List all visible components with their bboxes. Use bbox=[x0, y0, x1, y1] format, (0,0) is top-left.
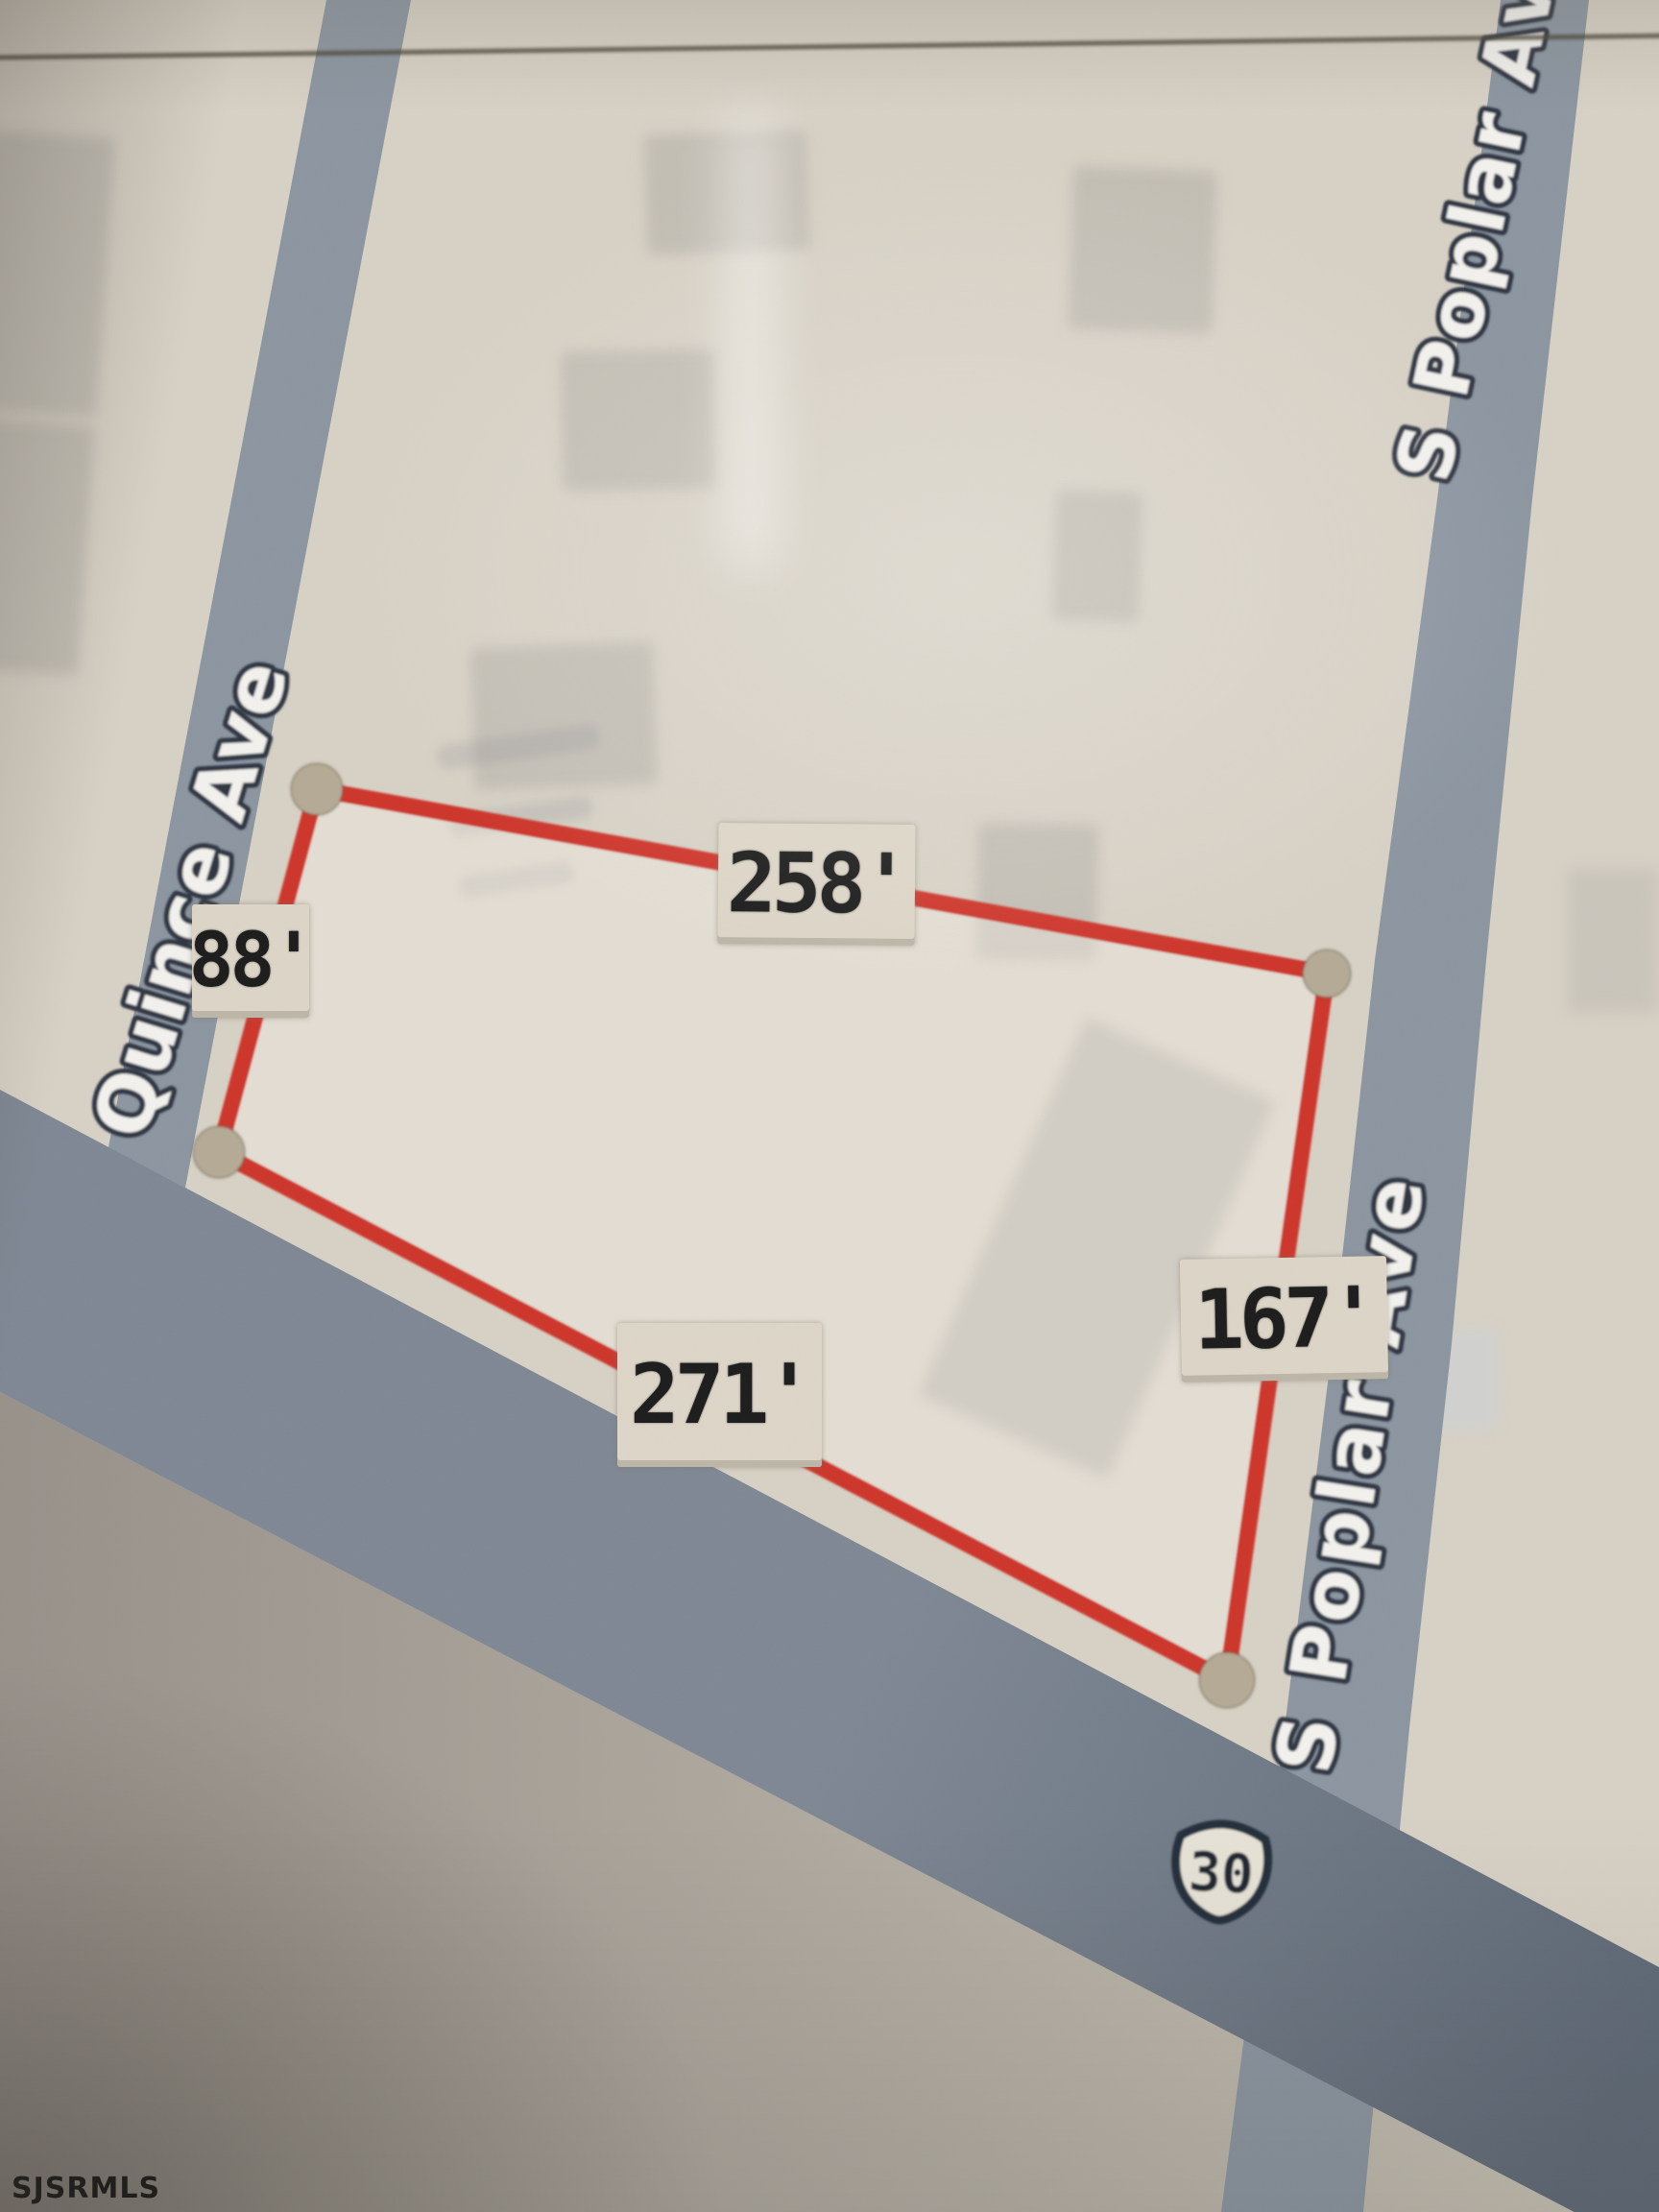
dimension-label-right: 167' bbox=[1180, 1256, 1388, 1382]
corner-dot bbox=[291, 763, 343, 815]
dimension-value: 88' bbox=[189, 918, 313, 1004]
dimension-label-left: 88' bbox=[192, 904, 309, 1018]
map-drawing: Quince Ave S Poplar Ave S Poplar Av 30 bbox=[0, 0, 1659, 2212]
corner-dot bbox=[1303, 950, 1351, 998]
dimension-value: 271' bbox=[630, 1347, 809, 1443]
plat-map-photo: Quince Ave S Poplar Ave S Poplar Av 30 8… bbox=[0, 0, 1659, 2212]
dimension-value: 258' bbox=[727, 835, 907, 933]
corner-dot bbox=[1199, 1652, 1255, 1708]
corner-dot bbox=[193, 1126, 245, 1178]
dimension-value: 167' bbox=[1193, 1269, 1375, 1368]
route-shield-number: 30 bbox=[1188, 1840, 1256, 1906]
dimension-label-bottom: 271' bbox=[617, 1323, 822, 1467]
mls-watermark: SJSRMLS bbox=[12, 2172, 160, 2205]
dimension-label-top: 258' bbox=[717, 823, 915, 946]
